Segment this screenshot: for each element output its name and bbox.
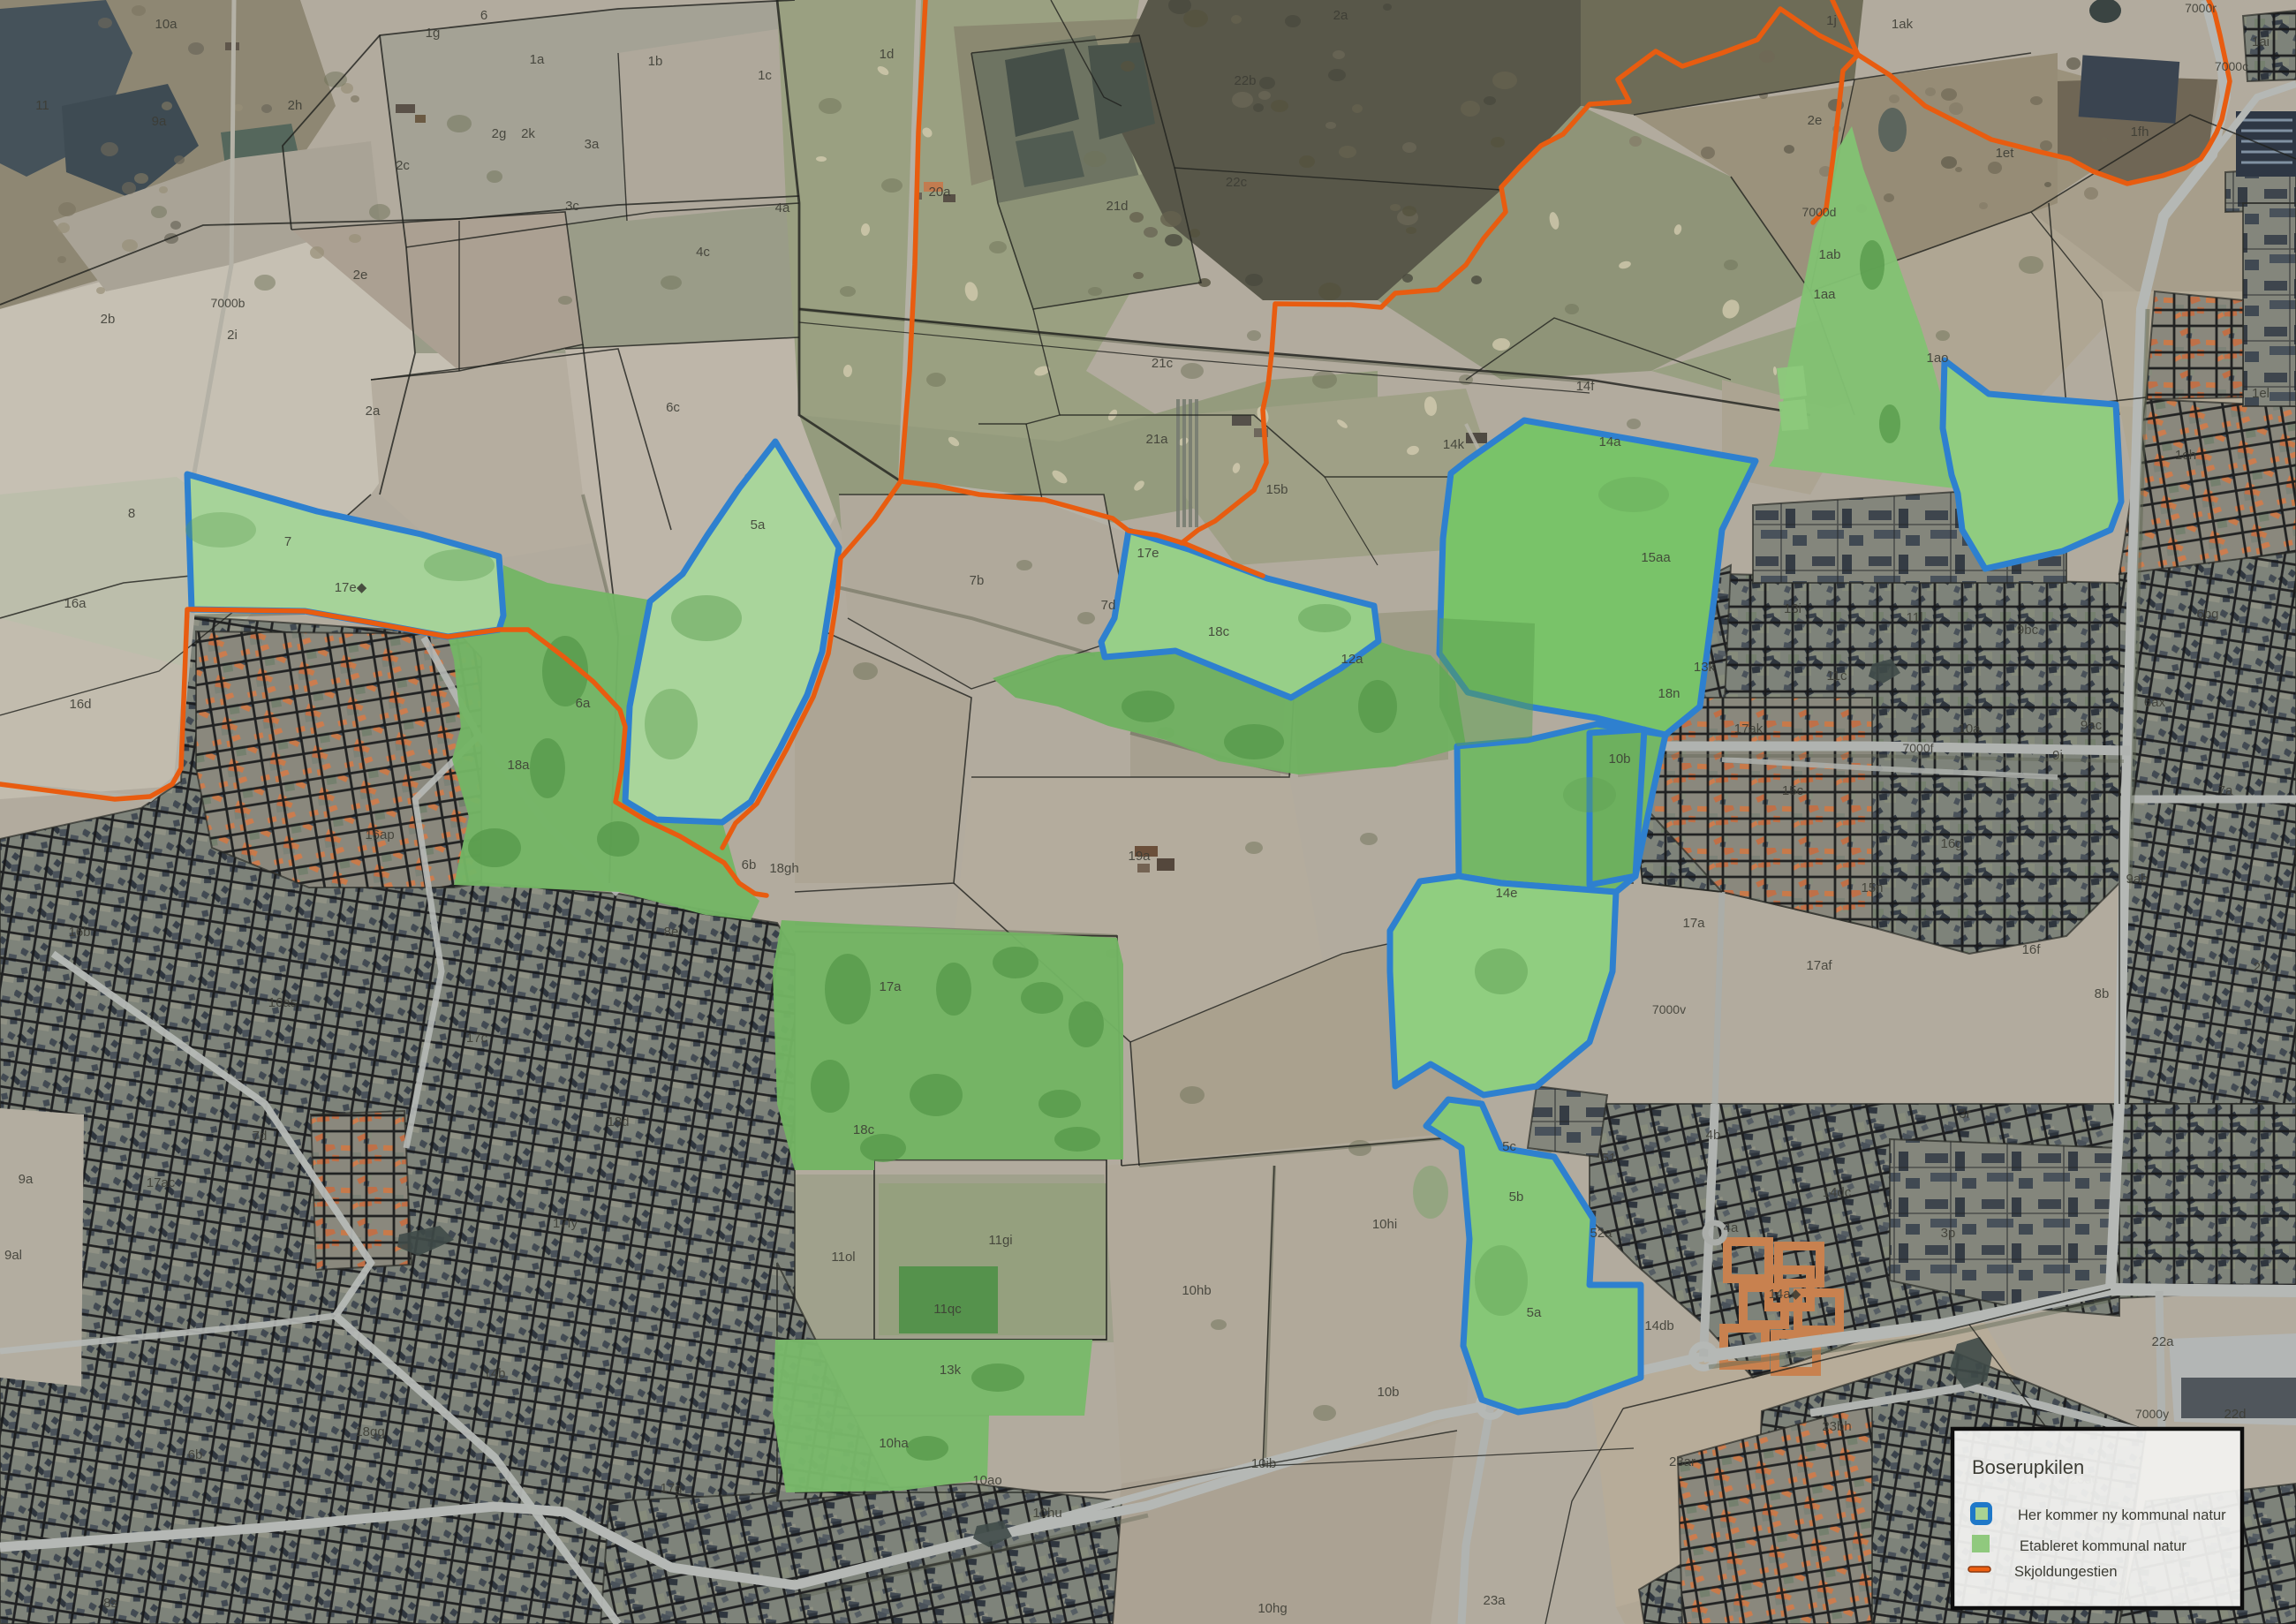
svg-text:9i: 9i [2052,748,2063,763]
svg-text:14k: 14k [1443,437,1465,452]
svg-text:1c: 1c [758,68,772,83]
svg-text:18gg: 18gg [355,1424,384,1439]
svg-text:17e◆: 17e◆ [335,580,367,595]
svg-text:9bc: 9bc [2017,623,2039,638]
svg-text:2e: 2e [1808,113,1823,128]
svg-text:16a: 16a [64,596,87,611]
svg-text:9al: 9al [4,1248,22,1263]
svg-text:18n: 18n [1658,686,1680,701]
svg-text:11ol: 11ol [831,1250,855,1265]
svg-text:17a: 17a [879,979,902,994]
svg-text:21d: 21d [1106,199,1128,214]
svg-text:11l: 11l [1907,610,1923,625]
svg-text:15n: 15n [1861,880,1883,895]
svg-text:21c: 21c [1152,356,1174,371]
svg-text:14e: 14e [1495,886,1517,901]
svg-text:1ch: 1ch [2175,448,2196,463]
svg-text:18d: 18d [607,1114,629,1129]
svg-text:16g: 16g [1940,836,1962,851]
svg-text:17g: 17g [660,1481,682,1496]
svg-text:1j: 1j [1826,13,1837,28]
svg-text:1ab: 1ab [1818,247,1840,262]
svg-text:13k: 13k [940,1363,962,1378]
svg-text:17fy: 17fy [553,1216,578,1231]
svg-text:8b: 8b [2095,986,2110,1001]
svg-text:2e: 2e [353,268,368,283]
svg-text:10b: 10b [1377,1385,1399,1400]
svg-text:1aa: 1aa [1813,287,1836,302]
svg-text:1ak: 1ak [1892,17,1914,32]
svg-text:7000d: 7000d [1802,205,1837,219]
svg-text:11qc: 11qc [933,1302,962,1317]
svg-text:2a: 2a [366,404,381,419]
svg-text:10hb: 10hb [1182,1283,1211,1298]
svg-text:7000f: 7000f [1902,741,1933,755]
svg-text:22d: 22d [2224,1407,2246,1422]
svg-text:7000b: 7000b [211,296,245,310]
svg-text:23ar: 23ar [1669,1454,1696,1469]
svg-text:2i: 2i [227,328,238,343]
svg-text:9ac: 9ac [2081,718,2103,733]
svg-text:3p: 3p [1941,1226,1956,1241]
svg-text:7000r: 7000r [2185,1,2217,15]
svg-text:6a: 6a [576,696,591,711]
svg-text:4a: 4a [775,200,790,215]
svg-text:16b: 16b [68,925,90,940]
svg-text:14f: 14f [1576,379,1596,394]
svg-text:15b: 15b [1265,482,1288,497]
svg-text:6bg: 6bg [2196,607,2218,622]
svg-text:7a: 7a [2218,783,2233,798]
svg-text:7d: 7d [1101,598,1116,613]
svg-text:1ai: 1ai [2252,34,2270,49]
svg-text:3r: 3r [1959,1107,1970,1122]
svg-text:11c: 11c [1826,668,1847,684]
svg-text:7b: 7b [970,573,985,588]
svg-text:6b: 6b [188,1447,203,1462]
svg-text:15aa: 15aa [1641,550,1671,565]
svg-text:14db: 14db [1644,1318,1673,1333]
svg-text:11gi: 11gi [988,1233,1012,1248]
svg-text:10ib: 10ib [1251,1456,1276,1471]
svg-text:11: 11 [35,98,49,113]
svg-text:9ab: 9ab [2126,872,2148,887]
svg-text:6b: 6b [742,857,757,872]
svg-text:1et: 1et [1996,146,2015,161]
svg-text:10a: 10a [155,17,177,32]
svg-text:14dc: 14dc [1823,1185,1852,1200]
svg-text:18c: 18c [853,1122,875,1137]
svg-text:20a: 20a [928,185,951,200]
svg-text:10b: 10b [1608,752,1630,767]
svg-text:6: 6 [480,8,487,23]
svg-text:52a: 52a [1590,1226,1612,1241]
svg-text:3c: 3c [565,199,579,214]
svg-text:22c: 22c [1226,175,1248,190]
svg-text:1b: 1b [648,54,663,69]
svg-text:4b: 4b [1706,1128,1721,1143]
svg-text:2h: 2h [288,98,303,113]
svg-text:7000y: 7000y [2135,1407,2169,1421]
svg-text:2c: 2c [396,158,410,173]
svg-text:18gh: 18gh [769,861,798,876]
svg-text:17e: 17e [1137,546,1159,561]
svg-text:22a: 22a [2151,1334,2174,1349]
svg-text:6c: 6c [666,400,680,415]
svg-text:17c: 17c [466,1031,488,1046]
svg-text:13k: 13k [1694,660,1716,675]
svg-text:2g: 2g [492,126,507,141]
svg-text:1g: 1g [426,26,441,41]
svg-text:2k: 2k [521,126,535,141]
svg-text:18a: 18a [507,758,530,773]
svg-text:Skjoldungestien: Skjoldungestien [2014,1564,2118,1580]
svg-text:1el: 1el [2252,386,2270,401]
svg-text:6ax: 6ax [2144,695,2166,710]
svg-text:14b: 14b [483,1366,505,1381]
svg-text:18c: 18c [1208,624,1230,639]
svg-text:10ha: 10ha [879,1436,909,1451]
svg-text:23a: 23a [1483,1593,1506,1608]
svg-text:16f: 16f [2022,942,2042,957]
svg-text:Etableret kommunal natur: Etableret kommunal natur [2020,1538,2186,1554]
svg-text:22b: 22b [1234,73,1256,88]
svg-text:14a◆: 14a◆ [1769,1287,1801,1302]
svg-text:1d: 1d [880,47,895,62]
svg-text:12a: 12a [1341,652,1363,667]
svg-text:16as: 16as [268,995,298,1010]
svg-text:51: 51 [1602,1151,1617,1166]
svg-text:5c: 5c [1502,1139,1516,1154]
svg-text:1fh: 1fh [2131,125,2149,140]
svg-text:16d: 16d [69,697,91,712]
svg-text:19a: 19a [1128,849,1151,864]
svg-text:2a: 2a [1333,8,1348,23]
svg-text:7000v: 7000v [1652,1002,1686,1016]
svg-text:10ao: 10ao [972,1473,1001,1488]
svg-text:10hi: 10hi [1372,1217,1397,1232]
svg-text:1ao: 1ao [1926,351,1948,366]
svg-text:7: 7 [284,534,291,549]
svg-text:15c: 15c [1782,783,1804,798]
svg-text:21a: 21a [1145,432,1168,447]
svg-text:5a: 5a [751,517,766,533]
svg-text:10a: 10a [1958,721,1981,736]
svg-text:7000c: 7000c [2215,59,2248,73]
svg-text:2b: 2b [2254,960,2269,975]
svg-text:17ac: 17ac [147,1175,176,1190]
svg-text:17a: 17a [1682,916,1705,931]
svg-text:13i: 13i [1784,601,1801,616]
svg-text:7d: 7d [253,1129,268,1144]
svg-text:8e: 8e [664,925,679,940]
svg-text:1a: 1a [530,52,545,67]
svg-text:5b: 5b [1509,1190,1524,1205]
svg-text:23bh: 23bh [1822,1419,1851,1434]
svg-text:4a: 4a [1724,1220,1739,1235]
svg-text:2b: 2b [101,312,116,327]
svg-text:10hu: 10hu [1032,1506,1061,1521]
svg-text:3a: 3a [585,137,600,152]
svg-text:9a: 9a [152,114,167,129]
svg-text:8: 8 [128,506,135,521]
svg-text:17af: 17af [1806,958,1832,973]
svg-text:4c: 4c [696,245,710,260]
svg-text:10hg: 10hg [1258,1601,1287,1616]
svg-text:16ap: 16ap [365,827,394,842]
svg-text:Boserupkilen: Boserupkilen [1972,1456,2084,1478]
svg-text:8s: 8s [103,1596,117,1611]
svg-text:5a: 5a [1527,1305,1542,1320]
svg-text:14a: 14a [1598,434,1621,449]
svg-text:17ak: 17ak [1734,721,1764,736]
svg-text:9a: 9a [19,1172,34,1187]
svg-text:Her kommer ny kommunal natur: Her kommer ny kommunal natur [2018,1507,2226,1523]
